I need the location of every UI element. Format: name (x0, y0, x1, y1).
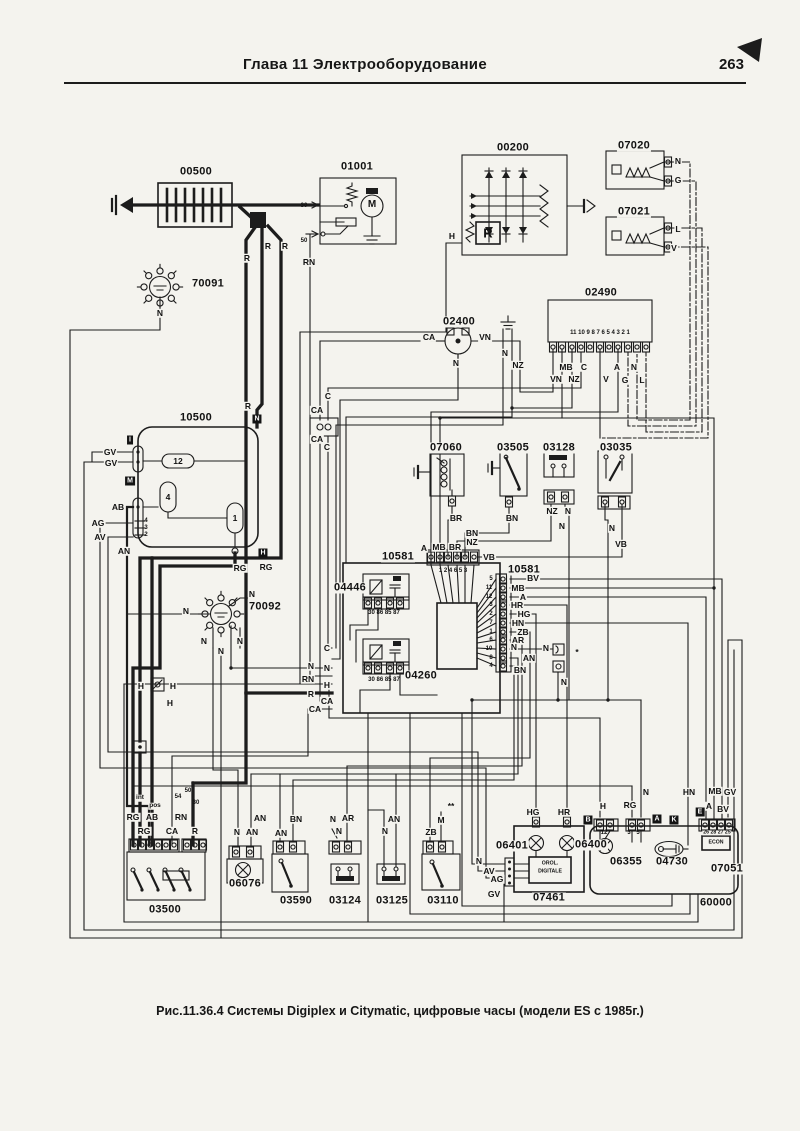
wire-label: VB (614, 540, 628, 549)
component-id: 04446 (333, 583, 367, 594)
connector-letter: N (252, 415, 261, 424)
wire-label: AN (253, 814, 267, 823)
connector-letter: A (652, 815, 661, 824)
component-id: 60000 (699, 898, 733, 909)
component-id: 10500 (179, 413, 213, 424)
component-id: 03110 (426, 896, 459, 907)
wire-label: N (329, 815, 337, 824)
wire-label: N (542, 644, 550, 653)
wire-label: M (436, 816, 445, 825)
component-id: 07020 (617, 141, 651, 152)
wire-label: N (452, 359, 460, 368)
wire-label: C (323, 644, 331, 653)
component-id: 03128 (542, 443, 576, 454)
wire-label: H (599, 802, 607, 811)
wire-label: N (558, 522, 566, 531)
wire-label: N (200, 637, 208, 646)
component-id: 03125 (375, 896, 409, 907)
pin-number: 6 (488, 637, 493, 643)
pin-number: 30 (192, 800, 201, 806)
wire-label: G (621, 376, 630, 385)
pin-number: 50 (300, 238, 309, 244)
connector-letter: E (696, 808, 705, 817)
wire-label: C (324, 392, 332, 401)
component-id: 06076 (228, 879, 262, 890)
wire-label: AG (490, 875, 505, 884)
wire-label: BV (716, 805, 730, 814)
wire-label: N (156, 309, 164, 318)
wire-label: N (236, 637, 244, 646)
wire-label: N (642, 788, 650, 797)
wire-label: C (580, 363, 588, 372)
wire-label: R (482, 227, 493, 240)
wire-label: N (510, 643, 518, 652)
wire-label: AB (111, 503, 125, 512)
component-id: 00500 (179, 167, 213, 178)
pin-number: 3 (488, 602, 493, 608)
component-id: 07060 (429, 443, 463, 454)
wire-label: N (674, 157, 682, 166)
wire-label: AV (93, 533, 106, 542)
pin-number: DIGITALE (537, 869, 563, 874)
component-id: 00200 (496, 143, 530, 154)
wire-label: L (638, 376, 645, 385)
wire-label: AB (145, 813, 159, 822)
wire-label: MB (431, 543, 446, 552)
wire-label: A (705, 802, 713, 811)
wire-label: N (501, 349, 509, 358)
wire-label: N (630, 363, 638, 372)
pin-number: 5 (488, 576, 493, 582)
wire-label: GV (487, 890, 501, 899)
wire-label: M (367, 200, 377, 210)
pin-number: 4 (488, 663, 493, 669)
pin-number: 2 (143, 532, 148, 538)
wire-label: AN (245, 828, 259, 837)
wire-label: R (307, 690, 315, 699)
pin-number: 4 (143, 518, 148, 524)
wire-label: VB (482, 553, 496, 562)
wire-label: N (248, 590, 256, 599)
wire-label: NZ (511, 361, 524, 370)
wire-label: GV (103, 448, 117, 457)
diagram-labels: 0050001001002000702007021700910240002490… (0, 0, 800, 1131)
wire-label: R (243, 254, 251, 263)
component-id: 02400 (442, 317, 476, 328)
wire-label: BR (449, 514, 463, 523)
wire-label: RG (137, 827, 152, 836)
pin-number: 30 (300, 203, 309, 209)
wire-label: BN (513, 666, 527, 675)
wire-label: H (448, 232, 456, 241)
component-id: 04730 (655, 857, 689, 868)
wire-label: RG (259, 563, 274, 572)
pin-number: OROL. (541, 861, 559, 866)
wire-label: * (574, 648, 579, 657)
wire-label: CA (165, 827, 179, 836)
wire-label: HG (526, 808, 541, 817)
pin-number: 12 (600, 830, 609, 836)
component-id: 03124 (328, 896, 362, 907)
wire-label: N (381, 827, 389, 836)
wire-label: 4 (165, 493, 172, 502)
wire-label: VN (549, 375, 563, 384)
component-id: 03590 (279, 896, 313, 907)
wire-label: AN (117, 547, 131, 556)
wire-label: A (420, 544, 428, 553)
wire-label: R (281, 242, 289, 251)
wire-label: N (307, 662, 315, 671)
wire-label: CA (310, 406, 324, 415)
wire-label: N (182, 607, 190, 616)
wire-label: RG (126, 813, 141, 822)
connector-letter: B (583, 816, 592, 825)
component-id: 70091 (191, 279, 225, 290)
wire-label: pos (148, 803, 162, 810)
wire-label: ** (447, 802, 456, 811)
connector-letter: I (127, 436, 133, 445)
wire-label: N (475, 857, 483, 866)
wire-label: RG (233, 564, 248, 573)
wire-label: RN (174, 813, 188, 822)
wire-label: CA (422, 333, 436, 342)
wire-label: AN (274, 829, 288, 838)
component-id: 03500 (148, 905, 182, 916)
wire-label: BR (448, 543, 462, 552)
figure-caption: Рис.11.36.4 Системы Digiplex и Citymatic… (0, 1004, 800, 1018)
component-id: 06401 (495, 841, 529, 852)
wire-label: NZ (567, 375, 580, 384)
pin-number: 3 (143, 525, 148, 531)
pin-number: 5 (635, 830, 640, 836)
pin-number: 11 (485, 585, 493, 591)
wire-label: AR (341, 814, 355, 823)
wire-label: R (244, 402, 252, 411)
wire-label: N (608, 524, 616, 533)
wire-label: MB (707, 787, 722, 796)
component-id: 07461 (532, 893, 566, 904)
component-id: 02490 (584, 288, 618, 299)
component-id: 03035 (599, 443, 633, 454)
wire-label: N (233, 828, 241, 837)
wire-label: GV (723, 788, 737, 797)
pin-number: 26 28 27 25 (702, 830, 731, 835)
pin-number: 3 (626, 830, 631, 836)
wire-label: 1 (232, 514, 239, 523)
wire-label: H (169, 682, 177, 691)
connector-letter: M (125, 477, 135, 486)
wire-label: C (323, 443, 331, 452)
wire-label: V (602, 375, 610, 384)
pin-number: 30 86 85 87 (367, 677, 401, 683)
wire-label: V (670, 244, 678, 253)
wire-label: RN (302, 258, 316, 267)
pin-number: 1 2 4 6 5 3 (438, 568, 468, 574)
wire-label: CA (308, 705, 322, 714)
pin-number: 8 (488, 655, 493, 661)
pin-number: 54 (174, 794, 183, 800)
wire-label: GV (104, 459, 118, 468)
wire-label: N (564, 507, 572, 516)
connector-letter: K (669, 816, 678, 825)
component-id: 70092 (248, 602, 282, 613)
pin-number: 30 86 85 87 (367, 610, 401, 616)
wire-label: HN (682, 788, 696, 797)
wire-label: NZ (465, 538, 478, 547)
wire-label: G (674, 176, 683, 185)
pin-number: 2 (488, 611, 493, 617)
component-id: 04260 (404, 671, 438, 682)
wire-label: A (613, 363, 621, 372)
pin-number: 12 (485, 594, 494, 600)
wire-label: N (335, 827, 343, 836)
wire-label: AN (387, 815, 401, 824)
wire-label: MB (558, 363, 573, 372)
component-id: 07051 (710, 864, 744, 875)
wire-label: N (323, 664, 331, 673)
wire-label: HR (557, 808, 571, 817)
wire-label: R (191, 827, 199, 836)
pin-number: 11 10 9 8 7 6 5 4 3 2 1 (569, 330, 631, 336)
wire-label: RN (301, 675, 315, 684)
wire-label: ZB (424, 828, 437, 837)
manual-page: Глава 11 Электрооборудование 263 (0, 0, 800, 1131)
wire-label: BN (505, 514, 519, 523)
wire-label: N (560, 678, 568, 687)
component-id: 10581 (381, 552, 415, 563)
component-id: 06400 (574, 840, 608, 851)
wire-label: VN (478, 333, 492, 342)
wire-label: AN (522, 654, 536, 663)
connector-letter: H (258, 549, 267, 558)
wire-label: BV (526, 574, 540, 583)
wire-label: int (135, 795, 145, 802)
wire-label: L (674, 225, 681, 234)
pin-number: 1 (488, 629, 493, 635)
wire-label: R (264, 242, 272, 251)
wire-label: AG (91, 519, 106, 528)
component-id: 01001 (340, 162, 374, 173)
wire-label: 12 (172, 457, 183, 466)
pin-number: 7 (488, 620, 493, 626)
wire-label: N (217, 647, 225, 656)
component-id: 07021 (617, 207, 651, 218)
pin-number: 10 (485, 646, 494, 652)
wire-label: H (323, 681, 331, 690)
wire-label: NZ (545, 507, 558, 516)
wire-label: H (166, 699, 174, 708)
component-id: 06355 (609, 857, 643, 868)
wire-label: BN (289, 815, 303, 824)
pin-number: 50 (184, 788, 193, 794)
pin-number: ECON (708, 840, 725, 845)
component-id: 03505 (496, 443, 530, 454)
wire-label: RG (623, 801, 638, 810)
wire-label: H (137, 682, 145, 691)
